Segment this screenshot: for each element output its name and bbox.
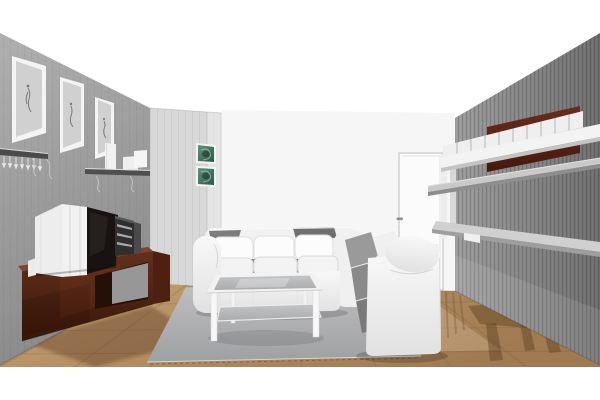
green-art-print-2 — [196, 166, 216, 187]
framed-sketch-2 — [60, 77, 84, 153]
art-swirl — [202, 151, 210, 157]
table-leg-front — [313, 288, 319, 337]
stereo-speaker — [134, 222, 141, 254]
coffee-table — [207, 273, 324, 346]
framed-sketch-1 — [12, 56, 46, 143]
green-art-print-1 — [196, 143, 216, 164]
glass-reflection — [235, 278, 290, 288]
table-shadow — [208, 330, 324, 346]
door-handle — [397, 218, 404, 221]
crt-tv — [28, 204, 118, 277]
sketch-figure-head — [103, 118, 105, 120]
tv-base — [28, 258, 36, 277]
console-side — [153, 251, 170, 304]
table-leg-front — [211, 290, 217, 341]
sketch-figure-head — [27, 85, 30, 88]
art-swirl — [202, 173, 210, 179]
render-viewport — [0, 0, 600, 400]
deco-box — [134, 150, 147, 168]
sketch-figure-head — [70, 103, 72, 105]
tv-bezel — [62, 204, 87, 277]
